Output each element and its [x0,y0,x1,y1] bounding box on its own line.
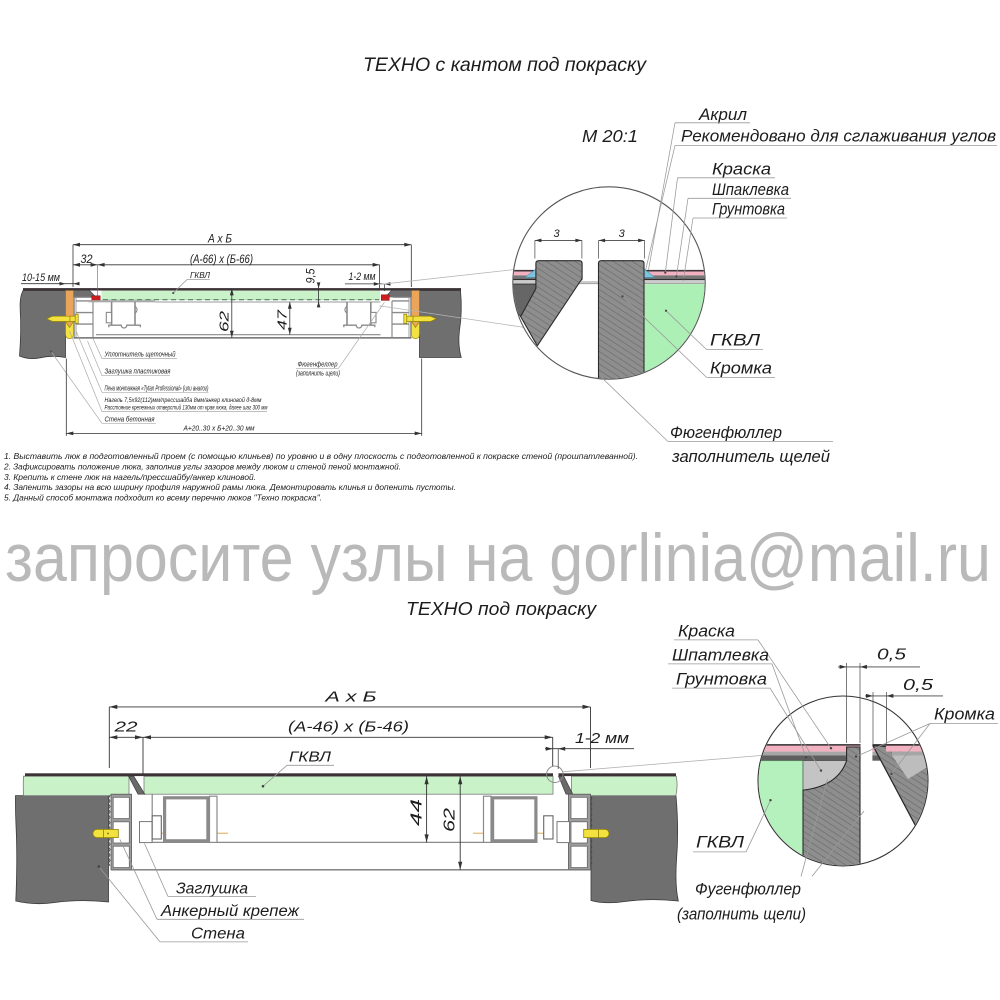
svg-text:А х Б: А х Б [324,690,376,706]
svg-text:А+20..30 х Б+20..30 мм: А+20..30 х Б+20..30 мм [183,424,255,433]
svg-text:Заглушка пластиковая: Заглушка пластиковая [105,369,171,376]
svg-text:1. Выставить люк в подготовлен: 1. Выставить люк в подготовленный проем … [4,452,638,461]
svg-text:Кромка: Кромка [934,705,995,724]
svg-text:Грунтовка: Грунтовка [712,201,785,219]
svg-text:Нагель 7,5х92(112)мм/прессшайб: Нагель 7,5х92(112)мм/прессшайба 8мм/анке… [105,396,262,404]
svg-text:ГКВЛ: ГКВЛ [190,271,211,280]
svg-text:22: 22 [113,720,137,736]
svg-text:9,5: 9,5 [306,268,318,284]
svg-text:Фюгенфеллер: Фюгенфеллер [298,362,338,369]
svg-text:Стена бетонная: Стена бетонная [105,415,155,423]
svg-text:М 20:1: М 20:1 [582,126,638,146]
svg-text:Уплотнитель щеточный: Уплотнитель щеточный [104,351,176,359]
svg-text:ГКВЛ: ГКВЛ [289,750,331,766]
svg-text:32: 32 [81,254,94,266]
svg-text:Фугенфюллер: Фугенфюллер [695,880,801,899]
svg-text:5. Данный способ монтажа подхо: 5. Данный способ монтажа подходит ко все… [4,493,322,502]
svg-text:ГКВЛ: ГКВЛ [710,331,760,350]
svg-text:Шпаклевка: Шпаклевка [712,181,789,199]
svg-text:Краска: Краска [712,160,771,178]
svg-text:1-2 мм: 1-2 мм [349,271,376,283]
svg-text:запросите узлы на gorlinia@mai: запросите узлы на gorlinia@mail.ru [5,520,991,596]
svg-text:ГКВЛ: ГКВЛ [696,833,744,852]
svg-text:Рекомендовано для сглаживания: Рекомендовано для сглаживания углов [681,128,996,146]
svg-text:(заполнить щели): (заполнить щели) [677,905,806,924]
svg-text:Фюгенфюллер: Фюгенфюллер [670,423,782,442]
svg-text:(заполнить щели): (заполнить щели) [296,371,340,378]
svg-text:ТЕХНО под покраску: ТЕХНО под покраску [406,598,598,619]
svg-text:Расстояние крепежных отверстий: Расстояние крепежных отверстий 130мм от … [105,404,268,412]
svg-text:(А-66) х (Б-66): (А-66) х (Б-66) [190,254,253,266]
svg-text:0,5: 0,5 [877,647,906,664]
svg-text:Пена монтажная «Tytan Professi: Пена монтажная «Tytan Professional» (или… [105,385,209,392]
svg-text:заполнитель щелей: заполнитель щелей [671,447,831,466]
svg-text:Кромка: Кромка [710,358,772,377]
svg-text:2. Зафиксировать положение люк: 2. Зафиксировать положение люка, заполни… [3,463,401,472]
svg-text:0,5: 0,5 [903,677,933,694]
svg-text:А х Б: А х Б [207,234,232,246]
svg-text:10-15 мм: 10-15 мм [22,272,60,284]
svg-text:Грунтовка: Грунтовка [676,670,767,689]
svg-text:3: 3 [619,228,626,240]
svg-text:44: 44 [409,798,426,826]
svg-text:62: 62 [442,807,459,832]
svg-text:Краска: Краска [678,622,735,641]
svg-text:Акрил: Акрил [698,106,747,124]
svg-text:(А-46) х (Б-46): (А-46) х (Б-46) [288,720,409,736]
svg-text:ТЕХНО с кантом под покраску: ТЕХНО с кантом под покраску [363,55,648,76]
svg-text:Стена: Стена [191,926,245,943]
svg-text:47: 47 [276,308,290,330]
svg-text:1-2 мм: 1-2 мм [575,731,629,747]
svg-text:3. Крепить к стене люк на наге: 3. Крепить к стене люк на нагель/прессша… [4,473,256,482]
svg-text:62: 62 [218,311,232,332]
svg-text:Анкерный крепеж: Анкерный крепеж [160,903,300,920]
svg-text:Заглушка: Заглушка [176,881,248,898]
svg-text:Шпатлевка: Шпатлевка [672,645,769,664]
svg-text:4. Запенить зазоры на всю шири: 4. Запенить зазоры на всю ширину профиля… [4,483,456,492]
svg-text:3: 3 [554,228,561,240]
